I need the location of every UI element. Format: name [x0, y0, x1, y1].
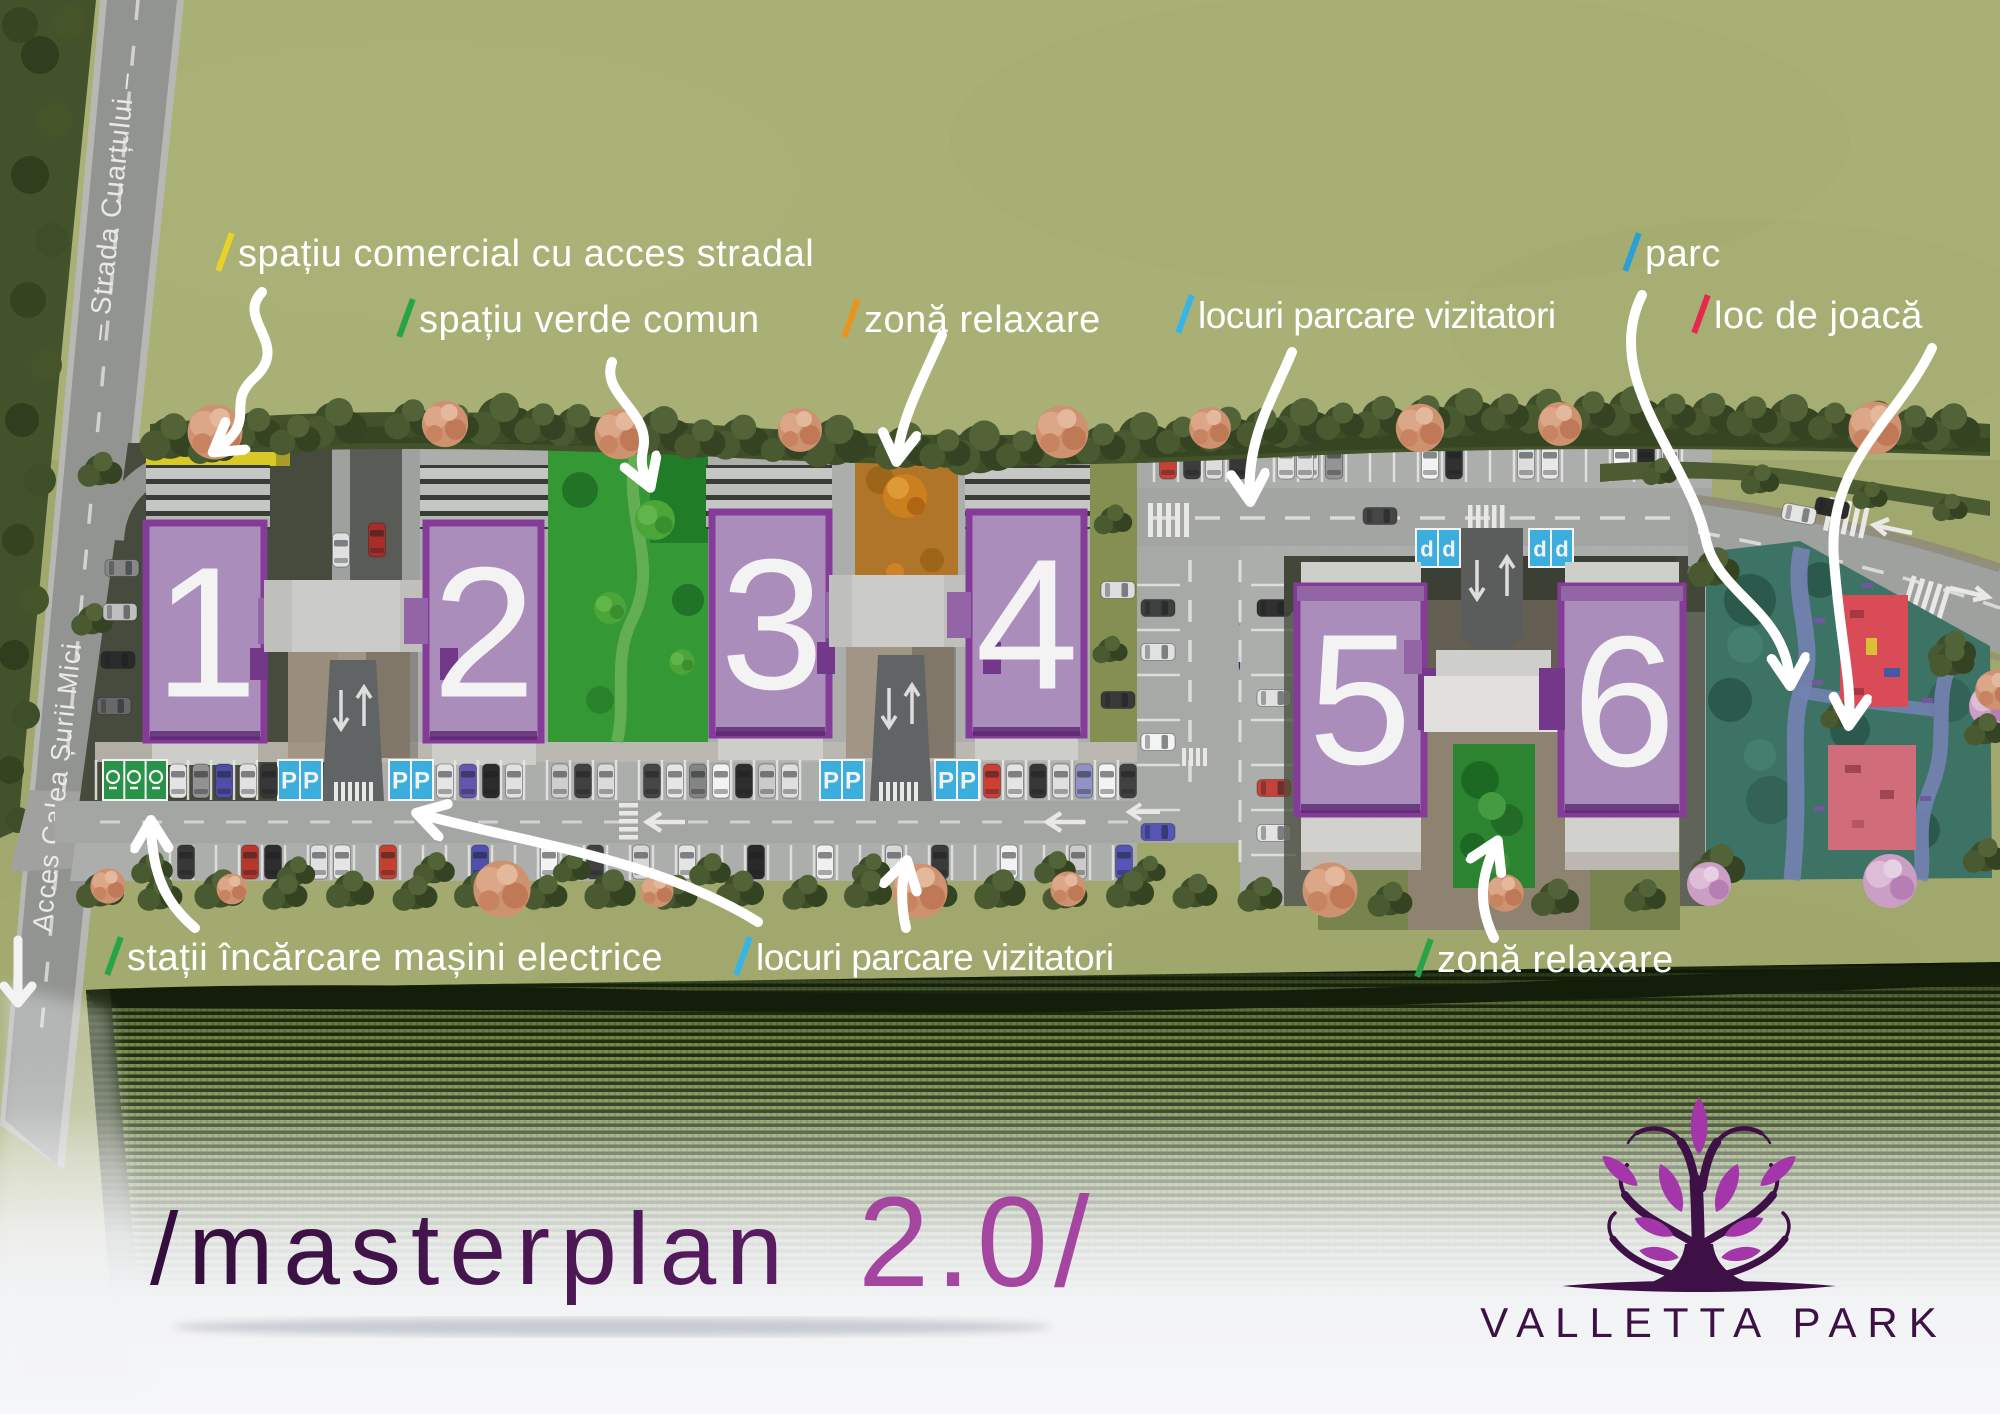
svg-text:loc de joacă: loc de joacă [1714, 295, 1923, 337]
svg-text:locuri parcare vizitatori: locuri parcare vizitatori [756, 937, 1114, 978]
svg-text:parc: parc [1645, 233, 1721, 275]
svg-text:locuri parcare vizitatori: locuri parcare vizitatori [1198, 295, 1556, 336]
svg-text:zonă relaxare: zonă relaxare [1437, 939, 1674, 981]
svg-text:zonă relaxare: zonă relaxare [864, 299, 1101, 341]
svg-text:spațiu comercial cu acces stra: spațiu comercial cu acces stradal [238, 233, 814, 275]
svg-text:stații încărcare mașini electr: stații încărcare mașini electrice [127, 937, 663, 979]
svg-text:/masterplan: /masterplan [150, 1192, 793, 1306]
svg-text:2.0/: 2.0/ [858, 1171, 1096, 1314]
svg-text:VALLETTA PARK: VALLETTA PARK [1480, 1299, 1947, 1346]
svg-text:spațiu verde comun: spațiu verde comun [419, 299, 760, 341]
